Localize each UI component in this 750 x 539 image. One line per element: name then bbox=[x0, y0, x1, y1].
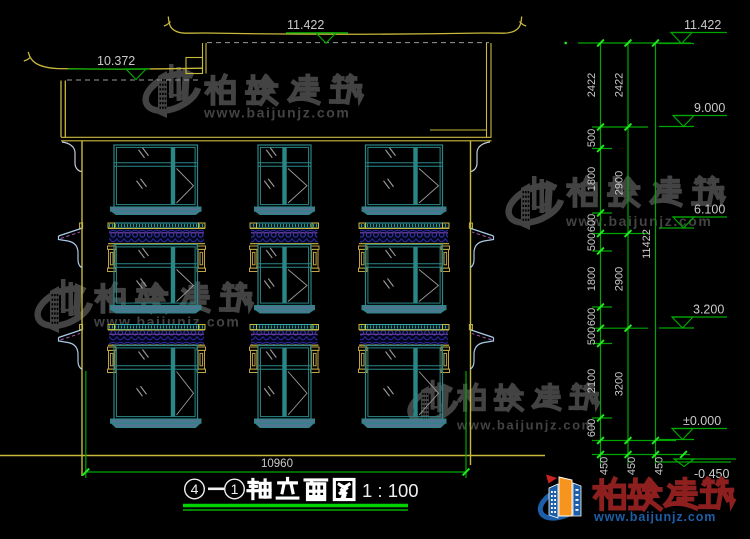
svg-text:10.372: 10.372 bbox=[97, 54, 135, 68]
svg-text:450: 450 bbox=[599, 457, 611, 475]
svg-text:11422: 11422 bbox=[641, 229, 653, 259]
svg-text:500: 500 bbox=[586, 327, 598, 345]
svg-text:±0.000: ±0.000 bbox=[683, 414, 721, 428]
svg-text:www.baijunjz.com: www.baijunjz.com bbox=[203, 105, 350, 121]
svg-text:450: 450 bbox=[626, 457, 638, 475]
svg-text:500: 500 bbox=[586, 233, 598, 251]
svg-text:11.422: 11.422 bbox=[684, 18, 721, 32]
svg-text:600: 600 bbox=[586, 308, 598, 326]
svg-text:1800: 1800 bbox=[586, 167, 598, 191]
svg-text:9.000: 9.000 bbox=[694, 101, 725, 115]
svg-text:2422: 2422 bbox=[614, 73, 626, 97]
svg-text:1: 1 bbox=[231, 481, 239, 497]
svg-text:www.baijunjz.com: www.baijunjz.com bbox=[456, 418, 595, 433]
svg-text:3200: 3200 bbox=[614, 372, 626, 396]
svg-text:500: 500 bbox=[586, 129, 598, 147]
svg-text:1800: 1800 bbox=[586, 267, 598, 291]
svg-text:2422: 2422 bbox=[586, 73, 598, 97]
svg-text:3.200: 3.200 bbox=[693, 303, 724, 317]
svg-text:450: 450 bbox=[654, 457, 666, 475]
svg-text:11.422: 11.422 bbox=[287, 18, 324, 32]
svg-text:www.baijunjz.com: www.baijunjz.com bbox=[593, 510, 716, 524]
svg-text:2100: 2100 bbox=[586, 369, 598, 393]
svg-text:10960: 10960 bbox=[261, 458, 293, 470]
svg-text:2900: 2900 bbox=[614, 171, 626, 195]
svg-text:6.100: 6.100 bbox=[694, 203, 725, 217]
svg-text:600: 600 bbox=[586, 214, 598, 232]
svg-text:1 : 100: 1 : 100 bbox=[362, 480, 419, 501]
svg-text:600: 600 bbox=[586, 419, 598, 437]
svg-text:2900: 2900 bbox=[614, 267, 626, 291]
svg-text:4: 4 bbox=[191, 481, 199, 497]
